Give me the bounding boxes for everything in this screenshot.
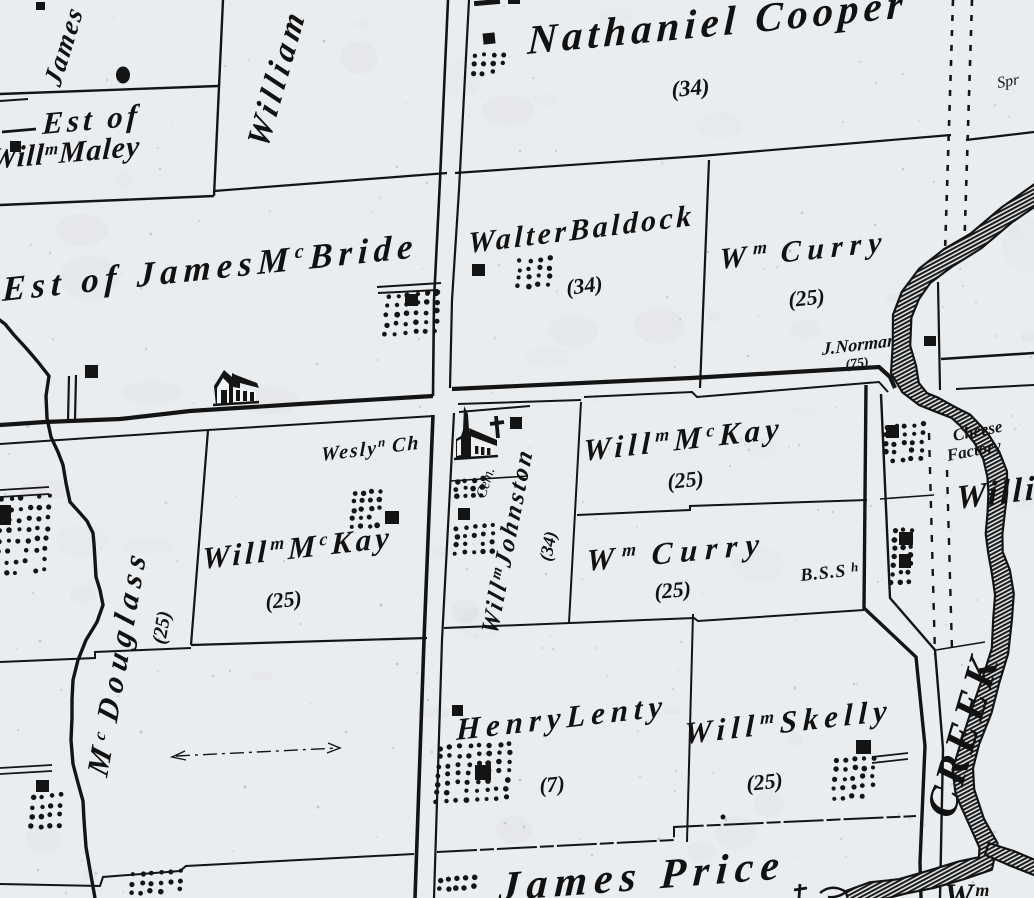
svg-text:(25): (25) — [653, 576, 692, 604]
svg-text:Wm: Wm — [944, 878, 991, 898]
svg-text:(25): (25) — [264, 585, 303, 614]
svg-text:(25): (25) — [787, 283, 826, 312]
svg-text:(25): (25) — [666, 465, 705, 494]
svg-text:(34): (34) — [670, 74, 710, 102]
svg-text:(34): (34) — [565, 271, 604, 300]
svg-text:(25): (25) — [745, 767, 784, 796]
svg-text:(7): (7) — [538, 770, 566, 798]
